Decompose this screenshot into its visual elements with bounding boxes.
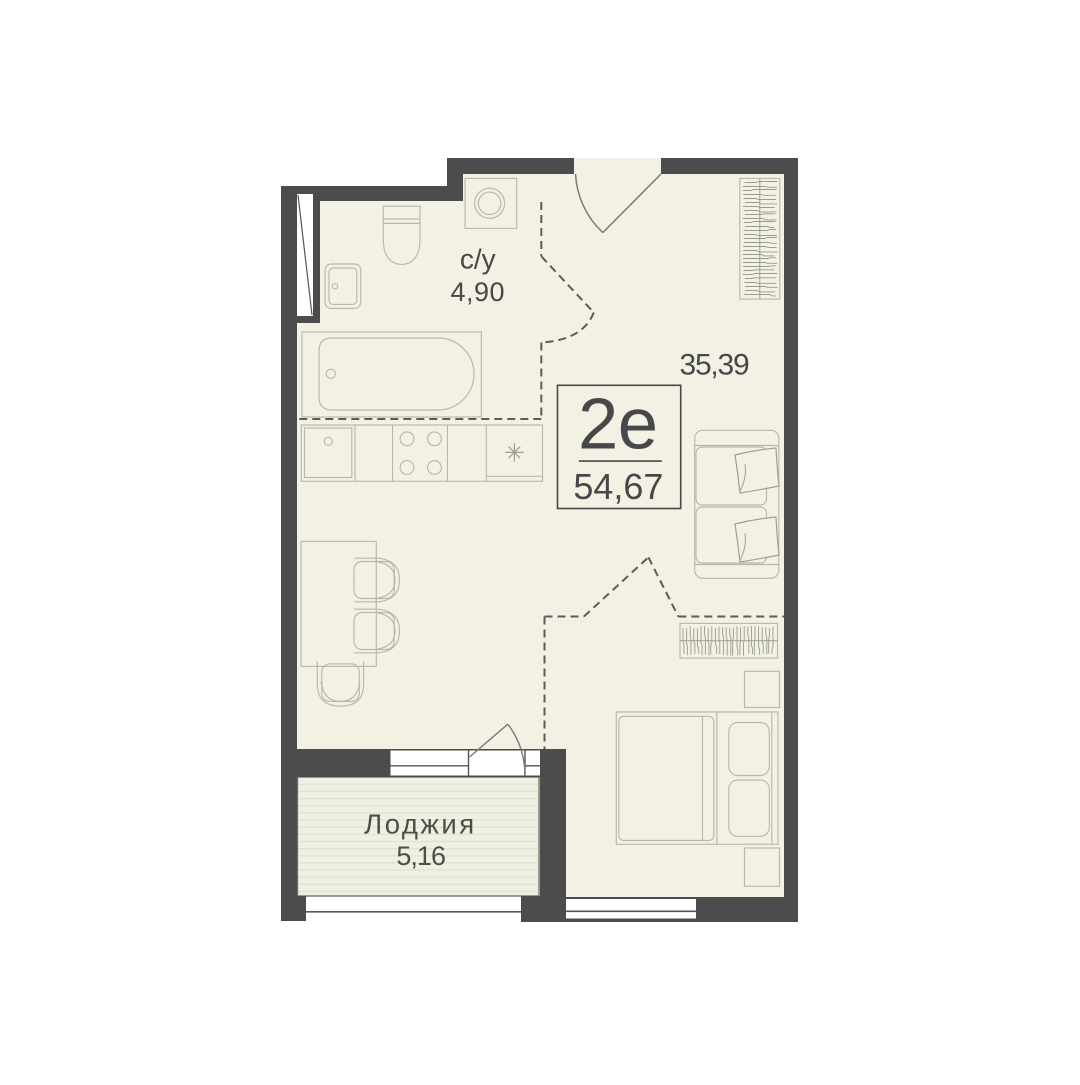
svg-text:2е: 2е bbox=[578, 384, 658, 465]
svg-text:54,67: 54,67 bbox=[573, 466, 663, 507]
svg-text:Лоджия: Лоджия bbox=[364, 808, 476, 839]
svg-text:с/у: с/у bbox=[460, 243, 496, 274]
svg-text:5,16: 5,16 bbox=[396, 841, 445, 871]
svg-text:4,90: 4,90 bbox=[451, 277, 506, 307]
svg-text:35,39: 35,39 bbox=[679, 349, 749, 382]
